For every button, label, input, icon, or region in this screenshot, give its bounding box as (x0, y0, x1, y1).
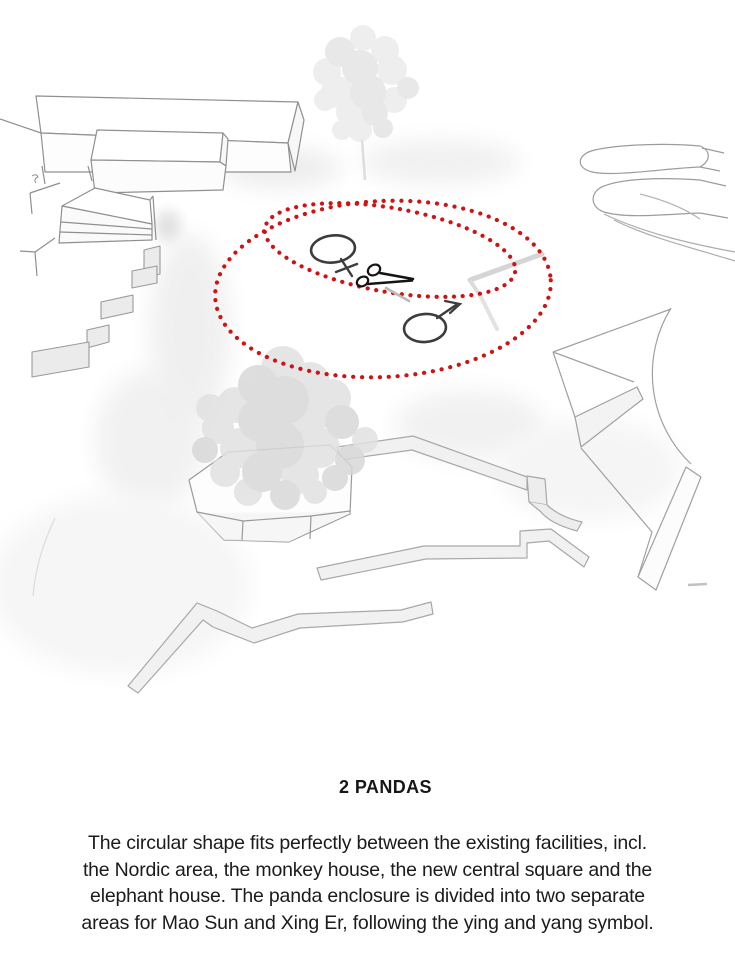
page-title: 2 PANDAS (18, 777, 735, 798)
caption-body: The circular shape fits perfectly betwee… (0, 830, 735, 936)
scissors-icon (355, 262, 413, 301)
panda-enclosure-outer-ellipse (211, 192, 556, 385)
panda-enclosure-inner-ellipse (258, 187, 523, 314)
page: 2 PANDAS The circular shape fits perfect… (0, 0, 735, 962)
tree-trunk (362, 140, 365, 180)
front-building-roof (91, 130, 223, 162)
front-building-front (91, 160, 226, 193)
female-symbol-icon (310, 233, 357, 276)
caption-line: elephant house. The panda enclosure is d… (0, 883, 735, 910)
footpaths (470, 254, 542, 329)
retaining-steps (32, 246, 160, 377)
site-plan-illustration (0, 0, 735, 762)
caption-line: The circular shape fits perfectly betwee… (0, 830, 735, 857)
caption-line: areas for Mao Sun and Xing Er, following… (0, 910, 735, 937)
monkey-house-outline (580, 144, 735, 261)
enclosure-symbols (310, 233, 460, 343)
male-symbol-icon (403, 301, 460, 343)
caption: 2 PANDAS The circular shape fits perfect… (0, 777, 735, 936)
panda-enclosure (211, 187, 556, 386)
caption-line: the Nordic area, the monkey house, the n… (0, 857, 735, 884)
